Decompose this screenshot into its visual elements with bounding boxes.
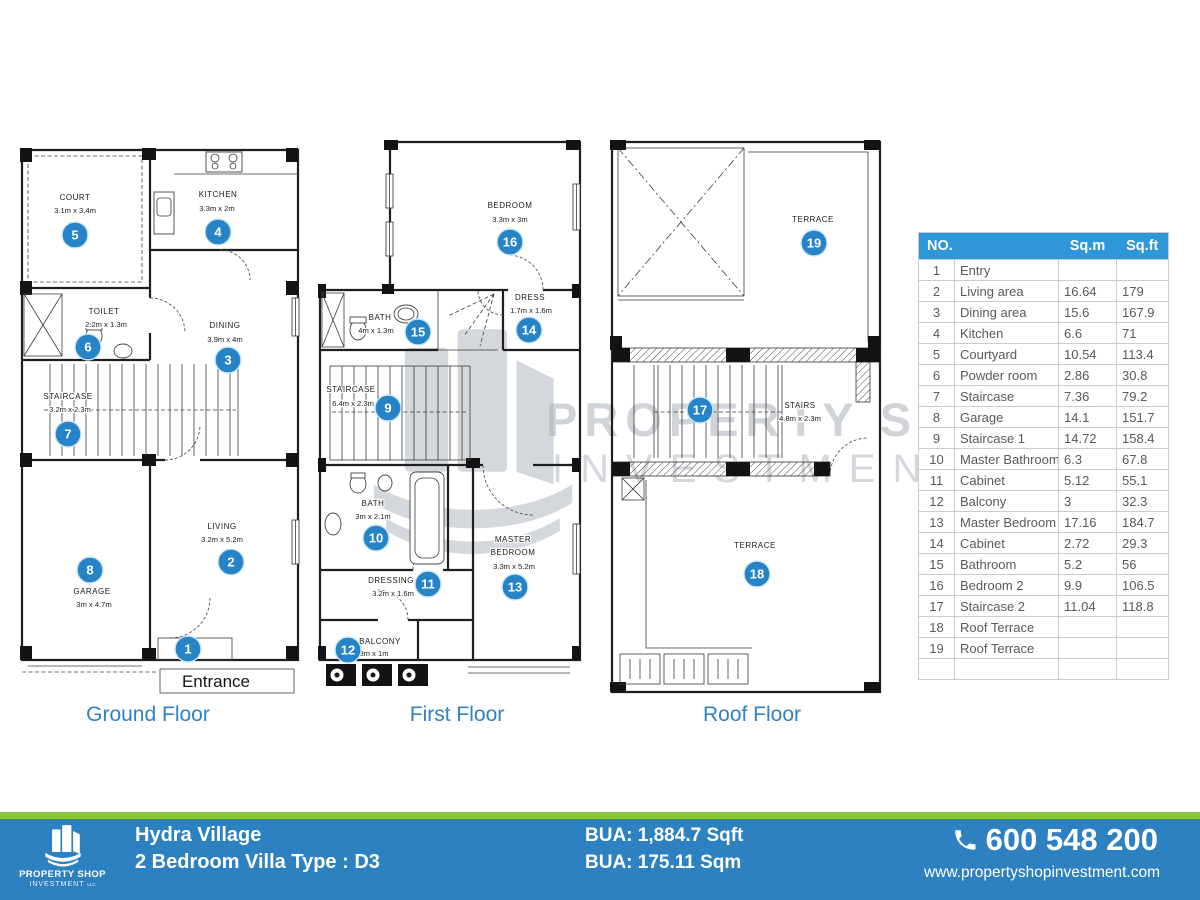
svg-text:16: 16 (503, 235, 517, 250)
svg-text:3m x 1m: 3m x 1m (359, 649, 388, 658)
room-marker-13: 13 (502, 574, 528, 600)
room-label-court: COURT 3.1m x 3.4m (54, 193, 96, 215)
ground-doors (150, 250, 250, 638)
bua-sqm: BUA: 175.11 Sqm (585, 852, 741, 874)
phone-icon (952, 827, 978, 853)
svg-text:3: 3 (224, 353, 231, 368)
svg-text:3.1m x 3.4m: 3.1m x 3.4m (54, 206, 96, 215)
svg-text:4: 4 (214, 225, 222, 240)
svg-text:DINING: DINING (210, 321, 241, 330)
svg-text:STAIRCASE: STAIRCASE (43, 392, 92, 401)
floor-title-roof: Roof Floor (612, 703, 892, 727)
svg-text:18: 18 (750, 567, 764, 582)
room-label-bedroom2: BEDROOM 3.3m x 3m (488, 201, 533, 224)
svg-text:DRESSING: DRESSING (368, 576, 414, 585)
first-floor-plan: BEDROOM 3.3m x 3m 16 DRESS 1.7m x 1.6m 1… (318, 140, 598, 696)
phone-number: 600 548 200 (952, 822, 1158, 858)
area-table: NO. Sq.m Sq.ft 1 Entry 2 Living area 16.… (918, 232, 1169, 680)
room-marker-15: 15 (405, 319, 431, 345)
roof-walls (612, 142, 880, 692)
svg-text:9: 9 (384, 401, 391, 416)
svg-text:TERRACE: TERRACE (734, 541, 776, 550)
room-label-dressing: DRESSING 3.2m x 1.6m (368, 576, 414, 598)
table-row: 6 Powder room 2.86 30.8 (919, 365, 1169, 386)
table-row: 14 Cabinet 2.72 29.3 (919, 533, 1169, 554)
table-row: 13 Master Bedroom 17.16 184.7 (919, 512, 1169, 533)
room-label-garage: GARAGE 3m x 4.7m (73, 587, 111, 609)
svg-text:3m x 4.7m: 3m x 4.7m (76, 600, 111, 609)
svg-text:6.4m x 2.3m: 6.4m x 2.3m (332, 399, 374, 408)
table-row: 4 Kitchen 6.6 71 (919, 323, 1169, 344)
svg-text:BEDROOM: BEDROOM (491, 548, 536, 557)
svg-text:STAIRCASE: STAIRCASE (326, 385, 375, 394)
svg-text:3m x 2.1m: 3m x 2.1m (355, 512, 390, 521)
room-label-terrace-upper: TERRACE (792, 215, 834, 224)
svg-text:11: 11 (421, 577, 435, 592)
room-label-master-bath: BATH 3m x 2.1m (355, 499, 390, 521)
room-marker-6: 6 (75, 334, 101, 360)
room-marker-4: 4 (205, 219, 231, 245)
logo-sub-text: INVESTMENT LLC (10, 881, 115, 888)
svg-text:3.2m x 5.2m: 3.2m x 5.2m (201, 535, 243, 544)
svg-text:COURT: COURT (60, 193, 91, 202)
svg-text:1: 1 (184, 642, 191, 657)
room-marker-11: 11 (415, 571, 441, 597)
svg-text:4m x 1.3m: 4m x 1.3m (358, 326, 393, 335)
room-label-stairs-roof: STAIRS 4.8m x 2.3m (779, 401, 821, 423)
room-marker-18: 18 (744, 561, 770, 587)
col-no: NO. (919, 233, 1059, 260)
footer-green-stripe (0, 812, 1200, 819)
svg-text:6: 6 (84, 340, 91, 355)
svg-text:10: 10 (369, 531, 383, 546)
table-row (919, 659, 1169, 680)
table-row: 7 Staircase 7.36 79.2 (919, 386, 1169, 407)
room-marker-1: 1 (175, 636, 201, 662)
table-row: 2 Living area 16.64 179 (919, 281, 1169, 302)
floorplan-sheet: PROPERTY SHOP INVESTMENT LLC (0, 0, 1200, 900)
table-row: 11 Cabinet 5.12 55.1 (919, 470, 1169, 491)
room-marker-7: 7 (55, 421, 81, 447)
room-label-living: LIVING 3.2m x 5.2m (201, 522, 243, 544)
website-url: www.propertyshopinvestment.com (924, 864, 1160, 882)
floor-title-ground: Ground Floor (8, 703, 288, 727)
svg-text:BATH: BATH (362, 499, 385, 508)
svg-text:19: 19 (807, 236, 821, 251)
room-marker-3: 3 (215, 347, 241, 373)
logo-brand-text: PROPERTY SHOP (10, 869, 115, 880)
room-label-staircase-1: STAIRCASE 6.4m x 2.3m (326, 385, 375, 408)
svg-text:3.2m x 2.3m: 3.2m x 2.3m (49, 405, 91, 414)
table-row: 15 Bathroom 5.2 56 (919, 554, 1169, 575)
table-row: 5 Courtyard 10.54 113.4 (919, 344, 1169, 365)
table-row: 9 Staircase 1 14.72 158.4 (919, 428, 1169, 449)
svg-text:BALCONY: BALCONY (359, 637, 401, 646)
svg-text:TOILET: TOILET (89, 307, 120, 316)
svg-text:3.3m x 5.2m: 3.3m x 5.2m (493, 562, 535, 571)
svg-text:BATH: BATH (369, 313, 392, 322)
roof-floor-plan: TERRACE 19 STAIRS 4.8m x 2.3m 17 TERRACE… (610, 140, 882, 696)
svg-text:GARAGE: GARAGE (73, 587, 110, 596)
room-marker-5: 5 (62, 222, 88, 248)
bua-sqft: BUA: 1,884.7 Sqft (585, 825, 743, 847)
svg-text:1.7m x 1.6m: 1.7m x 1.6m (510, 306, 552, 315)
svg-text:BEDROOM: BEDROOM (488, 201, 533, 210)
room-marker-10: 10 (363, 525, 389, 551)
first-shower (448, 294, 494, 346)
table-row: 10 Master Bathroom 6.3 67.8 (919, 449, 1169, 470)
area-table-header: NO. Sq.m Sq.ft (919, 233, 1169, 260)
room-marker-19: 19 (801, 230, 827, 256)
entrance-label: Entrance (182, 672, 250, 691)
svg-text:3.2m x 1.6m: 3.2m x 1.6m (372, 589, 414, 598)
first-balcony-railing (326, 664, 428, 686)
svg-text:MASTER: MASTER (495, 535, 531, 544)
project-name: Hydra Village (135, 824, 261, 847)
svg-text:LIVING: LIVING (207, 522, 236, 531)
svg-text:8: 8 (86, 563, 93, 578)
table-row: 1 Entry (919, 260, 1169, 281)
svg-text:15: 15 (411, 325, 425, 340)
svg-text:3.3m x 2m: 3.3m x 2m (199, 204, 234, 213)
svg-text:12: 12 (341, 643, 355, 658)
svg-text:2: 2 (227, 555, 234, 570)
svg-text:TERRACE: TERRACE (792, 215, 834, 224)
unit-type: 2 Bedroom Villa Type : D3 (135, 851, 380, 874)
table-row: 18 Roof Terrace (919, 617, 1169, 638)
col-sqft: Sq.ft (1117, 233, 1169, 260)
room-marker-17: 17 (687, 397, 713, 423)
table-row: 16 Bedroom 2 9.9 106.5 (919, 575, 1169, 596)
footer: PROPERTY SHOP INVESTMENT LLC Hydra Villa… (0, 812, 1200, 900)
table-row: 8 Garage 14.1 151.7 (919, 407, 1169, 428)
room-marker-2: 2 (218, 549, 244, 575)
room-label-balcony: BALCONY 3m x 1m (359, 637, 401, 658)
room-label-dining: DINING 3.9m x 4m (207, 321, 242, 344)
room-label-toilet: TOILET 2.2m x 1.3m (85, 307, 127, 329)
svg-text:KITCHEN: KITCHEN (199, 190, 238, 199)
room-marker-14: 14 (516, 317, 542, 343)
col-sqm: Sq.m (1059, 233, 1117, 260)
svg-text:14: 14 (522, 323, 537, 338)
roof-columns (610, 140, 880, 692)
roof-terrace-details (620, 478, 748, 684)
room-label-kitchen: KITCHEN 3.3m x 2m (199, 190, 238, 213)
svg-text:3.9m x 4m: 3.9m x 4m (207, 335, 242, 344)
room-label-dress: DRESS 1.7m x 1.6m (510, 293, 552, 315)
property-shop-logo-icon (42, 824, 84, 870)
svg-text:STAIRS: STAIRS (784, 401, 815, 410)
floor-title-first: First Floor (317, 703, 597, 727)
svg-text:2.2m x 1.3m: 2.2m x 1.3m (85, 320, 127, 329)
table-row: 19 Roof Terrace (919, 638, 1169, 659)
room-label-master-bedroom: MASTER BEDROOM 3.3m x 5.2m (491, 535, 536, 571)
table-row: 3 Dining area 15.6 167.9 (919, 302, 1169, 323)
svg-text:13: 13 (508, 580, 522, 595)
svg-text:17: 17 (693, 403, 707, 418)
table-row: 17 Staircase 2 11.04 118.8 (919, 596, 1169, 617)
room-marker-8: 8 (77, 557, 103, 583)
room-marker-12: 12 (335, 637, 361, 663)
room-label-staircase-g: STAIRCASE 3.2m x 2.3m (43, 392, 92, 414)
roof-stairs (634, 365, 868, 476)
svg-text:5: 5 (71, 228, 78, 243)
room-marker-9: 9 (375, 395, 401, 421)
svg-text:DRESS: DRESS (515, 293, 545, 302)
room-marker-16: 16 (497, 229, 523, 255)
table-row: 12 Balcony 3 32.3 (919, 491, 1169, 512)
svg-text:7: 7 (64, 427, 71, 442)
ground-floor-plan: COURT 3.1m x 3.4m 5 KITCHEN 3.3m x 2m 4 … (20, 148, 300, 694)
room-label-terrace-lower: TERRACE (734, 541, 776, 550)
svg-text:3.3m x 3m: 3.3m x 3m (492, 215, 527, 224)
svg-text:4.8m x 2.3m: 4.8m x 2.3m (779, 414, 821, 423)
